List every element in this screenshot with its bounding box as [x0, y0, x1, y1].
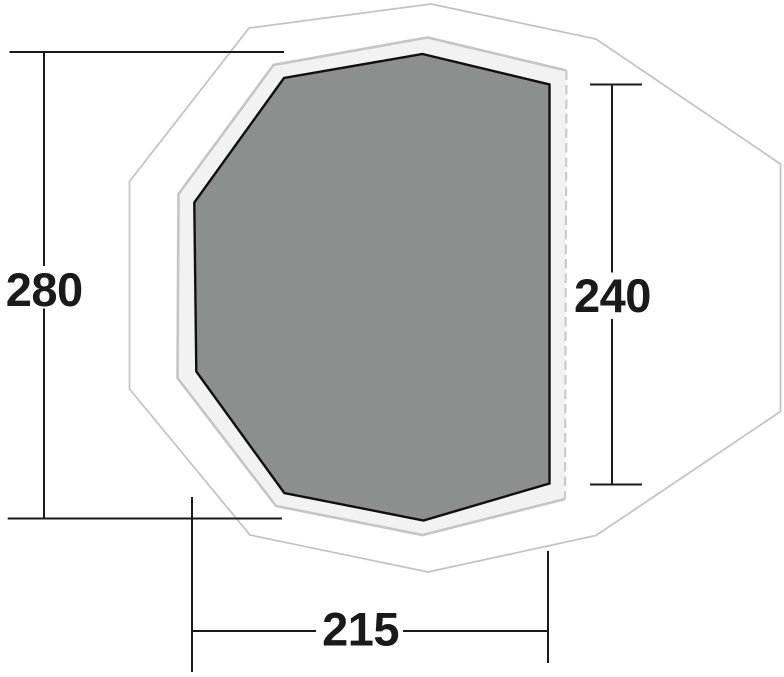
svg-text:240: 240	[574, 269, 651, 322]
svg-text:280: 280	[6, 263, 83, 316]
svg-text:215: 215	[322, 603, 399, 656]
